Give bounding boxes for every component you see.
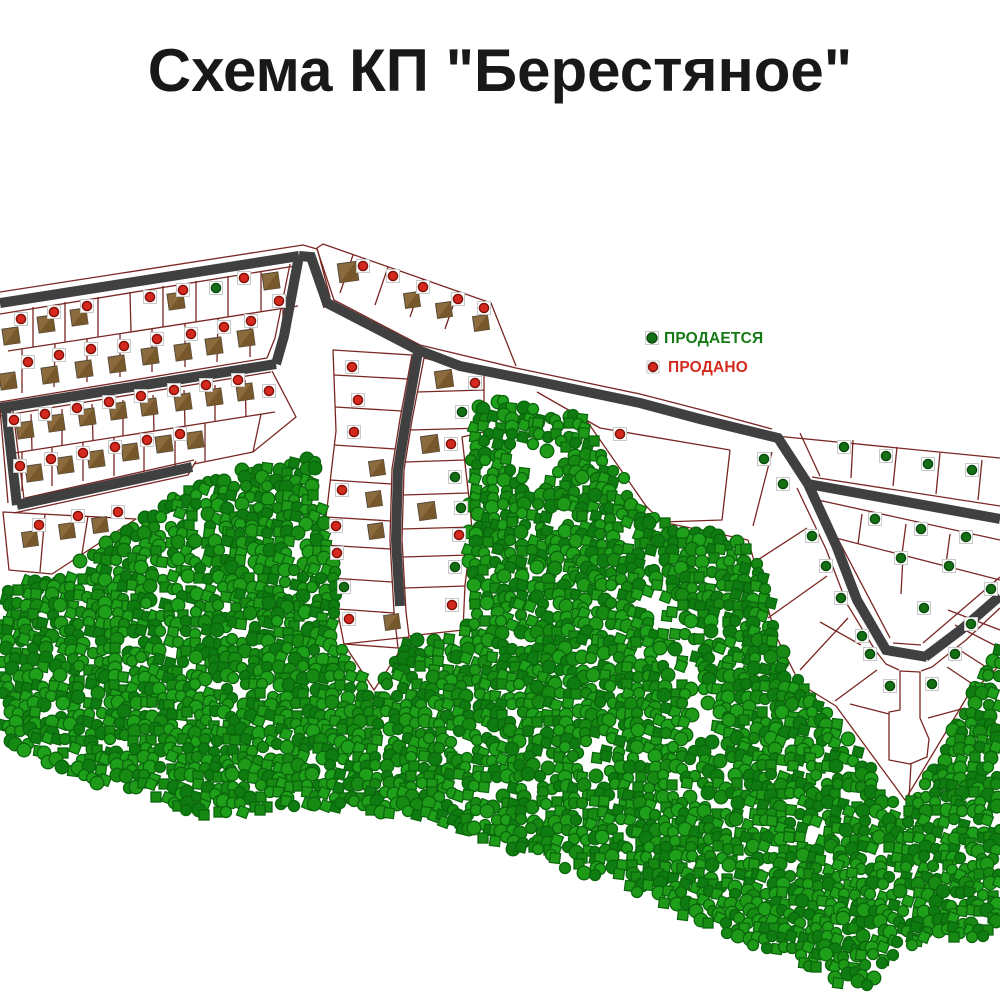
svg-text:ПРОДАЕТСЯ: ПРОДАЕТСЯ [664, 330, 763, 347]
svg-text:Схема КП "Берестяное": Схема КП "Берестяное" [148, 37, 852, 104]
svg-text:ПРОДАНО: ПРОДАНО [668, 359, 748, 376]
